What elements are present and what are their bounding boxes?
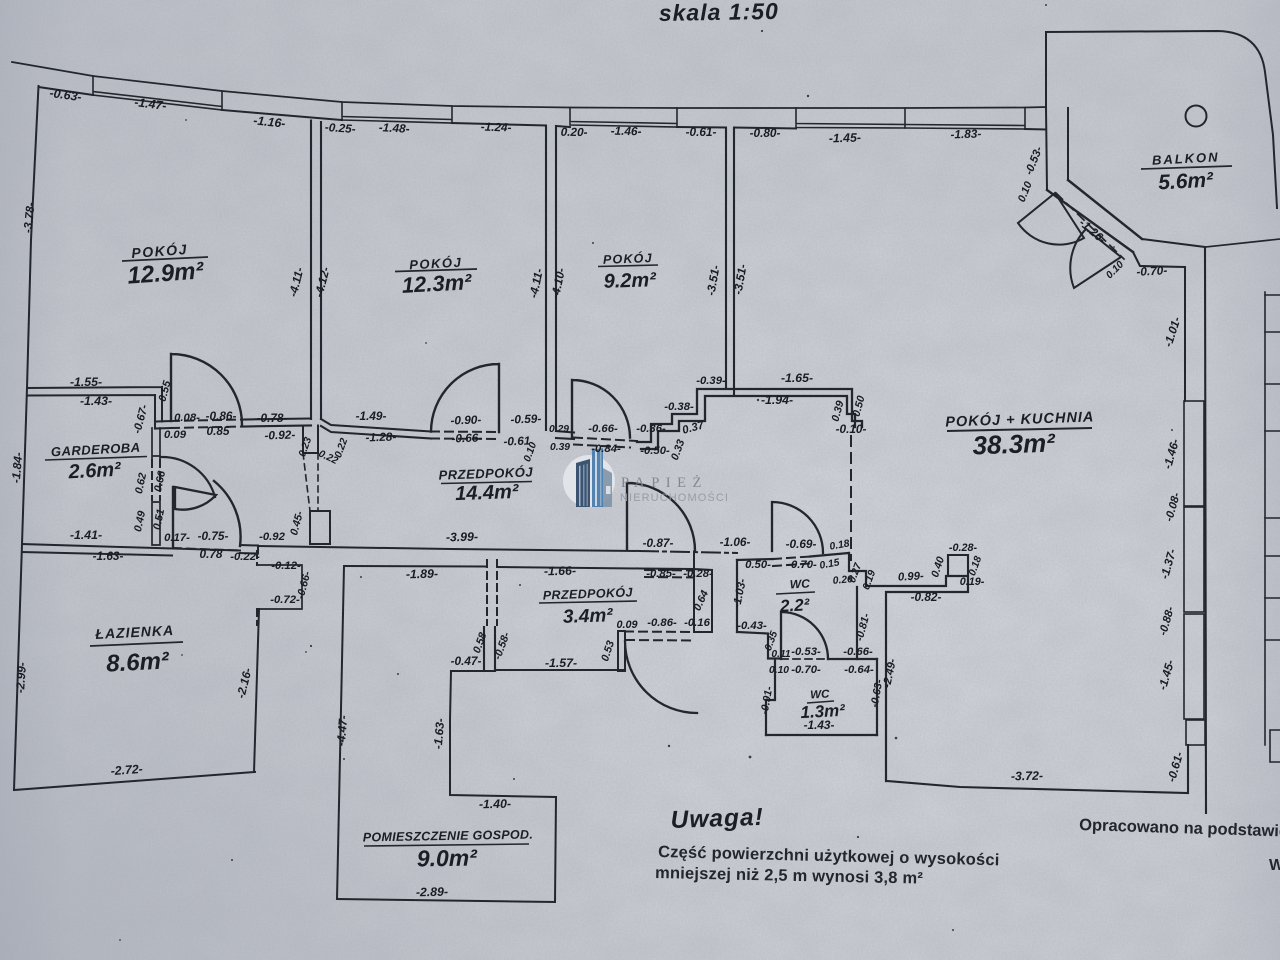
svg-text:-0.72-: -0.72- bbox=[270, 594, 300, 606]
svg-text:-0.50-: -0.50- bbox=[640, 445, 670, 457]
svg-text:9.0m²: 9.0m² bbox=[417, 844, 479, 871]
svg-text:14.4m²: 14.4m² bbox=[455, 481, 520, 505]
svg-text:-2.99-: -2.99- bbox=[13, 662, 29, 694]
svg-text:0.09: 0.09 bbox=[616, 619, 637, 631]
svg-text:-0.43-: -0.43- bbox=[737, 620, 767, 632]
svg-text:WC: WC bbox=[810, 688, 830, 701]
svg-text:-3.72-: -3.72- bbox=[1011, 769, 1043, 784]
svg-text:-1.24-: -1.24- bbox=[480, 119, 511, 134]
svg-text:-1.89-: -1.89- bbox=[406, 567, 438, 582]
svg-text:38.3m²: 38.3m² bbox=[972, 428, 1057, 461]
svg-text:-0.36-: -0.36- bbox=[636, 423, 666, 435]
svg-text:-0.69-: -0.69- bbox=[786, 537, 817, 551]
svg-text:0.19-: 0.19- bbox=[960, 576, 985, 588]
svg-text:-1.83-: -1.83- bbox=[950, 126, 981, 141]
svg-text:0.09: 0.09 bbox=[164, 429, 187, 441]
svg-text:2.6m²: 2.6m² bbox=[67, 459, 123, 484]
svg-text:-1.57-: -1.57- bbox=[545, 656, 577, 670]
svg-text:0.78: 0.78 bbox=[200, 547, 223, 561]
svg-text:-0.12-: -0.12- bbox=[271, 560, 301, 572]
svg-text:-1.63-: -1.63- bbox=[93, 549, 124, 563]
svg-text:PAPIEŻ: PAPIEŻ bbox=[621, 475, 708, 491]
svg-text:-1.41-: -1.41- bbox=[70, 528, 102, 542]
svg-text:-0.78-: -0.78- bbox=[257, 411, 288, 425]
svg-text:3.4m²: 3.4m² bbox=[563, 605, 614, 628]
svg-text:-0.59-: -0.59- bbox=[510, 411, 541, 426]
svg-text:-0.80-: -0.80- bbox=[750, 126, 781, 140]
svg-text:0.99-: 0.99- bbox=[898, 570, 925, 583]
svg-text:2.2²: 2.2² bbox=[779, 595, 812, 616]
svg-text:-1.63-: -1.63- bbox=[431, 718, 448, 750]
svg-text:-1.48-: -1.48- bbox=[378, 120, 410, 136]
svg-text:skala 1:50: skala 1:50 bbox=[659, 0, 779, 26]
svg-text:-0.70-: -0.70- bbox=[1136, 263, 1168, 279]
svg-text:-0.85-: -0.85- bbox=[646, 568, 676, 580]
svg-text:0.26: 0.26 bbox=[832, 574, 853, 587]
svg-text:-1.49-: -1.49- bbox=[356, 409, 387, 423]
svg-text:-1.55-: -1.55- bbox=[70, 375, 102, 389]
svg-text:POMIESZCZENIE GOSPOD.: POMIESZCZENIE GOSPOD. bbox=[363, 828, 533, 845]
svg-text:-1.45-: -1.45- bbox=[829, 130, 862, 145]
svg-text:0.17-: 0.17- bbox=[164, 532, 190, 544]
svg-text:-0.86-: -0.86- bbox=[206, 409, 237, 423]
svg-text:-0.75-: -0.75- bbox=[198, 529, 229, 543]
svg-text:PRZEDPOKÓJ: PRZEDPOKÓJ bbox=[543, 584, 634, 602]
svg-text:-1.84-: -1.84- bbox=[9, 452, 26, 484]
svg-text:-0.66-: -0.66- bbox=[843, 646, 873, 658]
svg-text:-0.86-: -0.86- bbox=[647, 617, 677, 629]
svg-text:-0.87-: -0.87- bbox=[643, 536, 674, 550]
svg-text:0.39: 0.39 bbox=[550, 442, 570, 453]
svg-text:-1.94-: -1.94- bbox=[761, 393, 793, 407]
svg-text:-0.39-: -0.39- bbox=[696, 375, 726, 387]
svg-text:0.08-: 0.08- bbox=[174, 412, 200, 424]
svg-text:-0.10-: -0.10- bbox=[836, 422, 867, 436]
svg-text:-0.61-: -0.61- bbox=[686, 125, 717, 139]
svg-text:-0.92: -0.92 bbox=[259, 531, 285, 543]
svg-text:-2.89-: -2.89- bbox=[416, 885, 448, 900]
svg-text:0.85: 0.85 bbox=[207, 424, 230, 438]
svg-text:-0.53-: -0.53- bbox=[791, 646, 821, 658]
svg-text:-0.28-: -0.28- bbox=[949, 542, 978, 554]
svg-text:-0.66-: -0.66- bbox=[588, 423, 618, 435]
svg-text:12.9m²: 12.9m² bbox=[127, 257, 206, 289]
svg-text:NIERUCHOMOŚCI: NIERUCHOMOŚCI bbox=[620, 491, 729, 504]
svg-text:-0.25-: -0.25- bbox=[324, 120, 356, 136]
svg-text:-0.70-: -0.70- bbox=[787, 559, 817, 571]
svg-text:-1.06-: -1.06- bbox=[720, 535, 751, 549]
svg-text:-3.99-: -3.99- bbox=[446, 530, 478, 545]
svg-text:POKÓJ: POKÓJ bbox=[603, 250, 653, 267]
svg-text:-1.46-: -1.46- bbox=[611, 124, 642, 139]
svg-text:-1.43-: -1.43- bbox=[80, 394, 112, 408]
svg-text:-0.47-: -0.47- bbox=[451, 654, 482, 668]
svg-text:-0.66-: -0.66- bbox=[451, 430, 482, 445]
svg-text:-1.65-: -1.65- bbox=[781, 371, 813, 385]
svg-text:9.2m²: 9.2m² bbox=[603, 269, 657, 293]
svg-text:0.20-: 0.20- bbox=[561, 125, 588, 139]
svg-text:-1.66-: -1.66- bbox=[544, 564, 576, 579]
svg-text:0.11: 0.11 bbox=[771, 649, 791, 660]
svg-text:-0.64-: -0.64- bbox=[844, 664, 874, 676]
svg-text:-0.92-: -0.92- bbox=[264, 427, 295, 442]
svg-text:-0.82-: -0.82- bbox=[911, 590, 942, 604]
svg-text:0.29: 0.29 bbox=[549, 424, 569, 435]
svg-text:WC: WC bbox=[789, 576, 810, 591]
svg-text:-4.47-: -4.47- bbox=[334, 715, 351, 747]
svg-text:-0.70-: -0.70- bbox=[791, 664, 821, 676]
svg-text:-1.40-: -1.40- bbox=[479, 797, 511, 812]
svg-text:W: W bbox=[1269, 857, 1280, 874]
svg-text:5.6m²: 5.6m² bbox=[1158, 169, 1215, 195]
svg-text:-1.28-: -1.28- bbox=[365, 429, 396, 444]
svg-text:8.6m²: 8.6m² bbox=[106, 647, 171, 677]
svg-text:-1.43-: -1.43- bbox=[804, 718, 835, 732]
svg-text:-0.28-: -0.28- bbox=[683, 568, 713, 580]
svg-text:-0.84-: -0.84- bbox=[591, 443, 621, 455]
svg-text:0.50-: 0.50- bbox=[745, 559, 771, 571]
svg-text:12.3m²: 12.3m² bbox=[401, 269, 473, 298]
svg-text:-0.16: -0.16 bbox=[684, 617, 710, 629]
svg-text:-0.22-: -0.22- bbox=[230, 551, 260, 563]
svg-text:-0.38-: -0.38- bbox=[664, 401, 694, 413]
svg-text:Uwaga!: Uwaga! bbox=[670, 804, 764, 834]
svg-text:-0.90-: -0.90- bbox=[450, 412, 481, 427]
svg-text:0.10: 0.10 bbox=[769, 665, 789, 676]
svg-text:-2.72-: -2.72- bbox=[110, 762, 143, 778]
